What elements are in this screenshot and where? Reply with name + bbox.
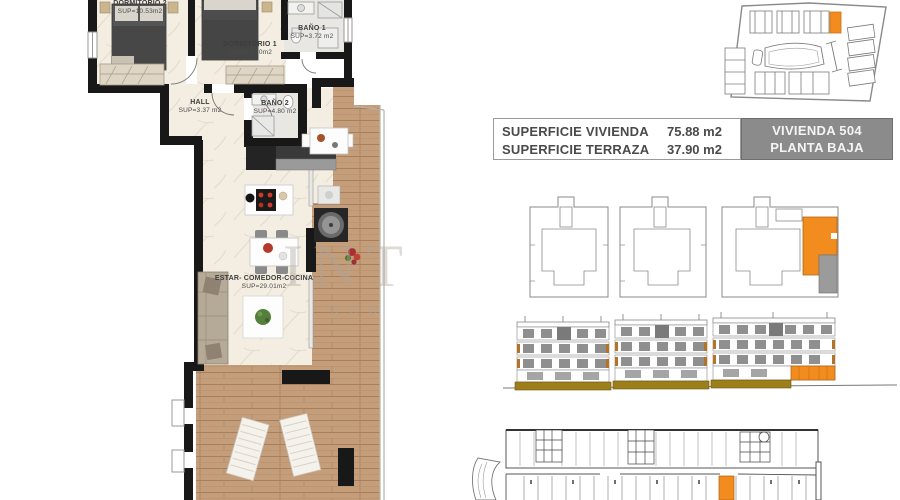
highlighted-unit-elevation — [791, 366, 835, 380]
watermark-text: INT — [283, 232, 413, 301]
coffee-table — [243, 296, 283, 338]
highlighted-unit-siteplan — [830, 12, 841, 33]
room-label-hall: HALL SUP=3.37 m2 — [169, 99, 231, 115]
elevation-3 — [711, 312, 835, 388]
summary-row-vivienda: SUPERFICIE VIVIENDA 75.88 m2 — [502, 122, 740, 140]
unit-plans — [500, 193, 900, 307]
room-label-bano1: BAÑO 1 SUP=3.72 m2 — [282, 25, 342, 41]
room-label-bano2: BAÑO 2 SUP=4.80 m2 — [244, 100, 306, 116]
highlighted-parking-space — [719, 476, 734, 500]
room-label-dormitorio2: DORMITORIO 2 SUP=10.53m2 — [95, 0, 185, 16]
garage-plan — [470, 418, 900, 500]
elevation-1 — [515, 316, 611, 390]
pool-shape — [765, 43, 824, 69]
building-elevations — [495, 312, 900, 398]
site-plan — [713, 0, 895, 110]
summary-row-terraza: SUPERFICIE TERRAZA 37.90 m2 — [502, 140, 740, 158]
brochure-page: { "floor_plan": { "rooms": [ {"name": "D… — [0, 0, 900, 500]
elevation-2 — [613, 314, 709, 389]
gray-terrace-plan — [819, 255, 837, 293]
breakfast-table — [302, 128, 353, 154]
unit-number: VIVIENDA 504 — [772, 122, 862, 139]
unit-identifier-box: VIVIENDA 504 PLANTA BAJA — [741, 118, 893, 160]
unit-floor: PLANTA BAJA — [770, 139, 864, 156]
surface-summary-box: SUPERFICIE VIVIENDA 75.88 m2 SUPERFICIE … — [493, 118, 741, 160]
watermark-url: WWW — [328, 302, 386, 318]
room-label-dormitorio1: DORMITORIO 1 SUP=11.70m2 — [205, 41, 295, 57]
